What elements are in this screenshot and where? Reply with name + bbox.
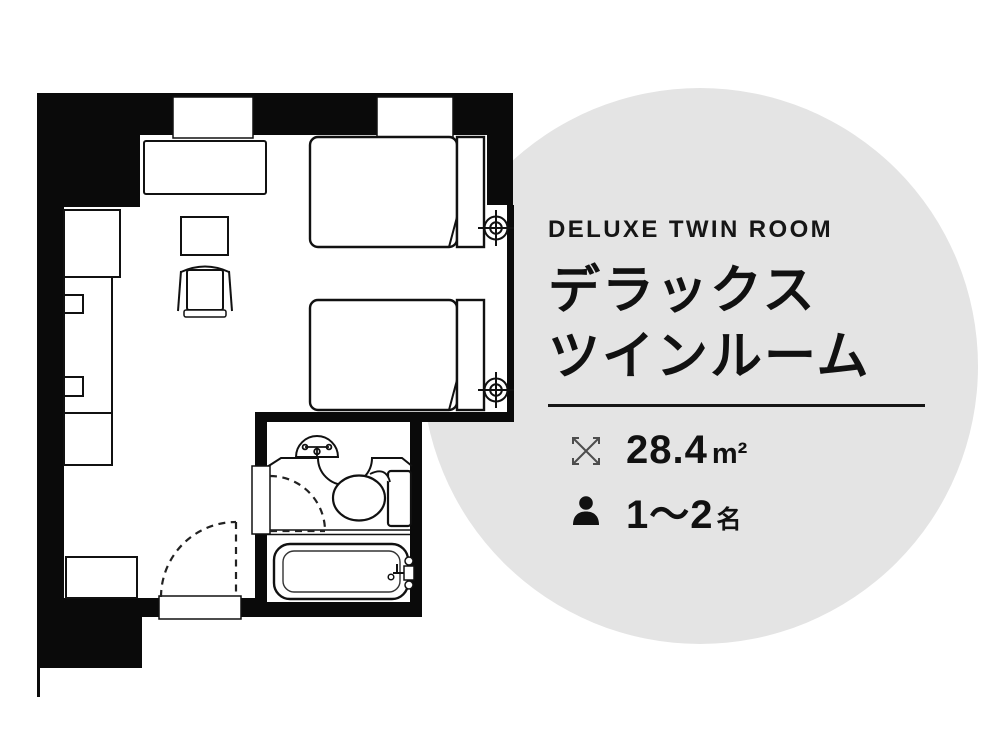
twin-bed-1 — [310, 137, 484, 247]
wall-bathroom-top — [255, 412, 513, 422]
toilet — [333, 471, 411, 526]
armchair — [178, 267, 232, 318]
capacity-row: 1〜2 名 — [548, 489, 948, 533]
capacity-unit: 名 — [717, 500, 742, 536]
room-info-panel: DELUXE TWIN ROOM デラックス ツインルーム 28.4 m² — [548, 218, 948, 533]
room-title-ja-line1: デラックス — [548, 259, 948, 325]
divider-line — [548, 404, 925, 407]
sofa — [144, 141, 266, 194]
twin-bed-2 — [310, 300, 484, 410]
expand-arrows-icon — [568, 433, 604, 469]
area-value: 28.4 — [626, 428, 708, 473]
room-title-ja: デラックス ツインルーム — [548, 259, 948, 390]
room-title-ja-line2: ツインルーム — [548, 325, 948, 391]
coffee-table — [181, 217, 228, 255]
wall-left-sliver — [37, 668, 40, 697]
entry-cabinet — [66, 557, 137, 598]
wall-bathroom-bottom — [255, 602, 422, 617]
closet-lower — [64, 413, 112, 465]
bed-1-mattress — [310, 137, 457, 247]
bed-2-mattress — [310, 300, 457, 410]
toilet-tank — [388, 471, 411, 526]
window-2 — [377, 97, 453, 138]
capacity-text: 1〜2 名 — [626, 482, 742, 540]
capacity-value: 1〜2 — [626, 482, 714, 540]
wall-left — [37, 93, 64, 598]
area-unit: m² — [712, 438, 747, 471]
bed-1-headboard — [457, 137, 484, 247]
toilet-bowl — [333, 476, 385, 521]
wall-top-right-corner — [487, 93, 513, 205]
area-row: 28.4 m² — [548, 429, 948, 473]
area-text: 28.4 m² — [626, 428, 747, 473]
bathroom-door-frame — [252, 466, 270, 534]
bed-2-headboard — [457, 300, 484, 410]
closet-upper — [64, 210, 120, 277]
desk-knob-2 — [64, 377, 83, 396]
room-title-en: DELUXE TWIN ROOM — [548, 218, 948, 242]
desk-knob-1 — [64, 295, 83, 313]
wall-bottom-left-block — [37, 598, 142, 668]
window-1 — [173, 97, 253, 138]
bathtub-inner — [283, 551, 400, 592]
page: DELUXE TWIN ROOM デラックス ツインルーム 28.4 m² — [0, 0, 1000, 750]
entrance-door-sill — [159, 596, 241, 619]
person-icon — [568, 494, 604, 528]
